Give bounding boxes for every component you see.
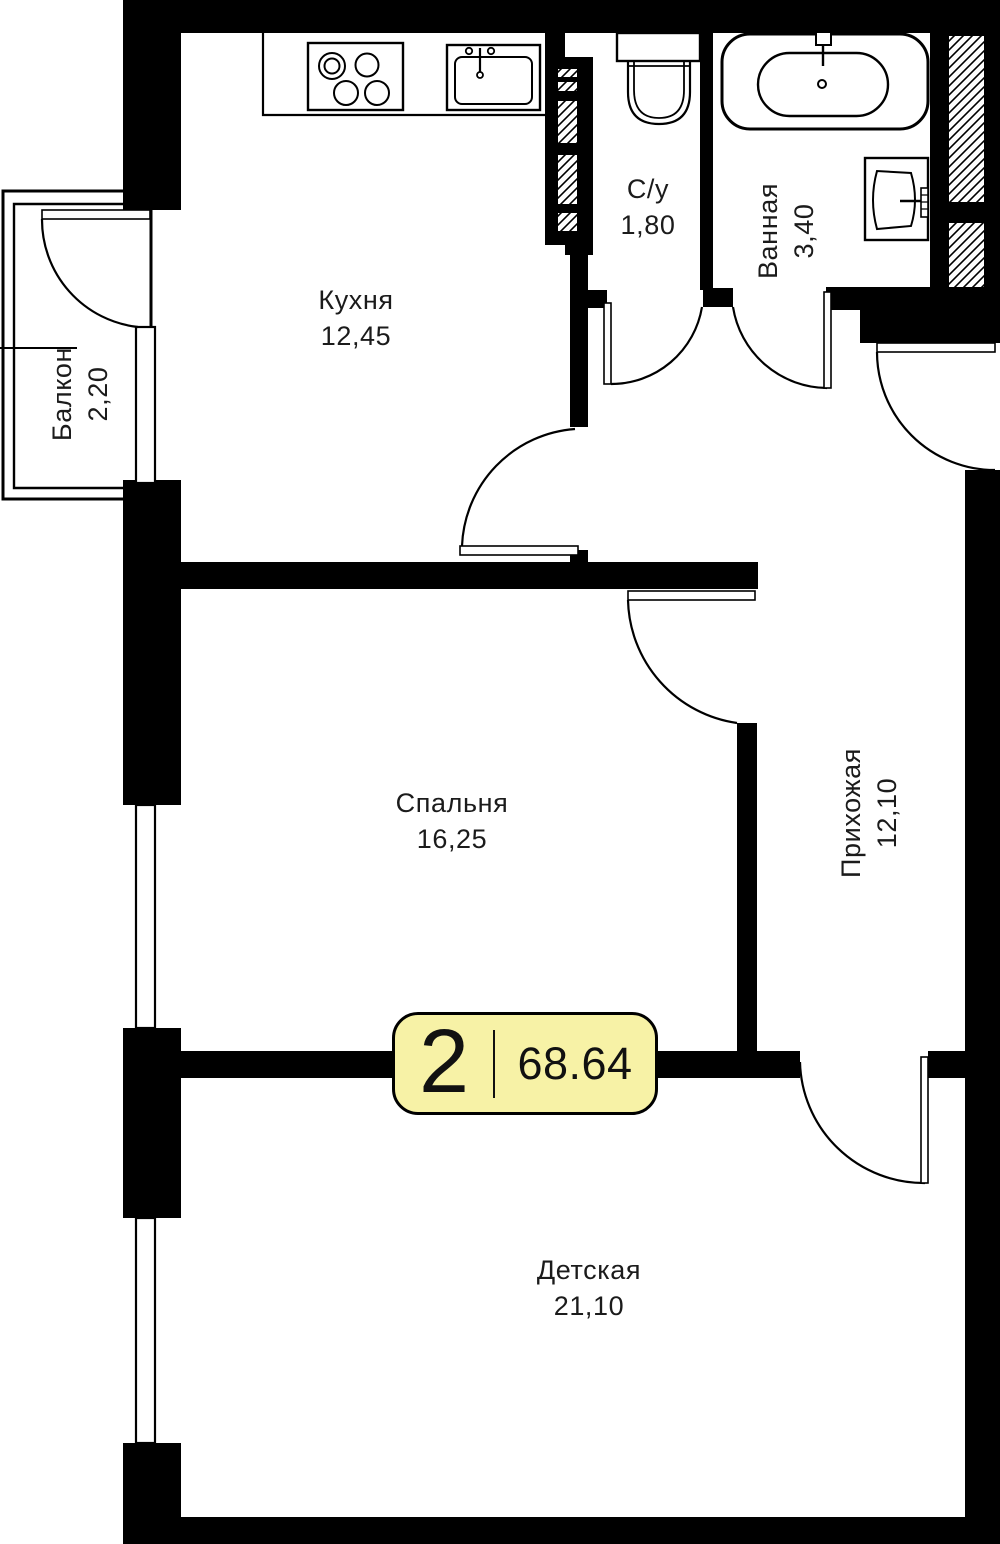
room-label-wc: С/у 1,80	[621, 171, 676, 243]
toilet-icon	[617, 33, 700, 124]
room-name: Спальня	[396, 785, 509, 821]
bathroom-door	[733, 292, 831, 388]
room-label-bathroom: Ванная 3,40	[750, 183, 822, 279]
room-name: Балкон	[44, 347, 80, 441]
bathtub-icon	[722, 29, 928, 129]
bedroom-door	[628, 591, 755, 723]
room-name: Ванная	[750, 183, 786, 279]
bedroom-window	[136, 805, 155, 1028]
badge-total-area: 68.64	[495, 1038, 655, 1090]
entrance-door	[877, 343, 995, 470]
room-area: 1,80	[621, 207, 676, 243]
apartment-badge: 2 68.64	[392, 1012, 658, 1115]
balcony-railing	[0, 191, 151, 499]
room-label-balcony: Балкон 2,20	[44, 347, 116, 441]
stove-icon	[308, 43, 403, 110]
wc-door	[604, 303, 702, 384]
room-name: Кухня	[318, 282, 393, 318]
room-name: Прихожая	[833, 748, 869, 878]
room-area: 12,10	[869, 748, 905, 878]
room-label-nursery: Детская 21,10	[537, 1252, 641, 1324]
balcony-window	[136, 327, 155, 483]
nursery-window	[136, 1218, 155, 1443]
washbasin-icon	[865, 158, 928, 240]
room-label-kitchen: Кухня 12,45	[318, 282, 393, 354]
room-area: 2,20	[80, 347, 116, 441]
room-area: 16,25	[396, 821, 509, 857]
kitchen-door	[460, 429, 578, 555]
kitchen-sink-icon	[447, 45, 540, 110]
nursery-door	[800, 1057, 928, 1183]
room-name: С/у	[621, 171, 676, 207]
floor-plan: Кухня 12,45 С/у 1,80 Ванная 3,40 Балкон …	[0, 0, 1000, 1544]
room-label-bedroom: Спальня 16,25	[396, 785, 509, 857]
room-name: Детская	[537, 1252, 641, 1288]
room-area: 12,45	[318, 318, 393, 354]
balcony-door	[42, 210, 150, 327]
badge-rooms-count: 2	[395, 1017, 493, 1111]
room-label-hallway: Прихожая 12,10	[833, 748, 905, 878]
room-area: 21,10	[537, 1288, 641, 1324]
room-area: 3,40	[786, 183, 822, 279]
